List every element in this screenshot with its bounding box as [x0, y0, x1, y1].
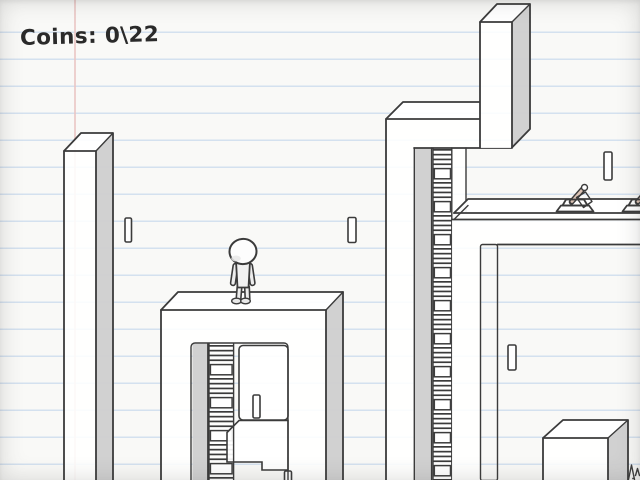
crate-cube [543, 420, 628, 480]
coins-counter-label: Coins: 0\22 [20, 22, 160, 51]
opening-left-shading [193, 344, 208, 480]
top-right-pillar [480, 4, 530, 148]
recess-left-wall-shading [481, 245, 498, 480]
middle-tower [161, 292, 343, 480]
player-head [228, 238, 257, 265]
inner-back-panel [239, 346, 288, 421]
left-pillar [64, 133, 113, 480]
coin-2 [348, 218, 356, 243]
doodle-sketch-marks [629, 465, 640, 480]
player-left-foot [232, 298, 242, 304]
player-right-foot [241, 298, 251, 304]
upper-ladder-tower [386, 102, 512, 480]
coin-4 [508, 345, 516, 370]
tall-ladder [433, 148, 452, 480]
coins-counter: Coins: 0\22 [20, 22, 160, 51]
game-viewport: Coins: 0\22 [0, 0, 640, 480]
game-canvas[interactable] [0, 0, 640, 480]
coin-1 [125, 218, 132, 242]
shaft-left-shading [415, 148, 432, 480]
coin-5 [253, 395, 260, 418]
coin-3 [604, 152, 612, 180]
inner-step-ledge [227, 421, 288, 471]
